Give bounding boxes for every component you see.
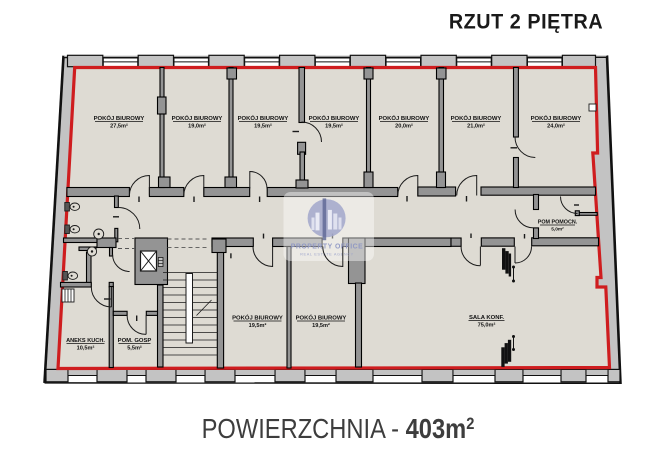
svg-text:PROPERTY OFFICE: PROPERTY OFFICE — [291, 244, 363, 251]
svg-text:24,0m²: 24,0m² — [547, 123, 565, 130]
svg-text:POKÓJ BIUROWY: POKÓJ BIUROWY — [232, 314, 283, 322]
svg-text:19,5m²: 19,5m² — [312, 322, 330, 329]
svg-text:POKÓJ BIUROWY: POKÓJ BIUROWY — [172, 114, 223, 122]
svg-text:REAL ESTATE AGENCY: REAL ESTATE AGENCY — [300, 252, 354, 257]
svg-text:27,5m²: 27,5m² — [110, 123, 128, 130]
svg-text:19,0m²: 19,0m² — [188, 123, 206, 130]
svg-text:75,0m²: 75,0m² — [478, 322, 496, 329]
svg-text:RZUT 2 PIĘTRA: RZUT 2 PIĘTRA — [449, 10, 603, 34]
svg-text:POKÓJ BIUROWY: POKÓJ BIUROWY — [296, 314, 347, 322]
svg-text:POKÓJ BIUROWY: POKÓJ BIUROWY — [238, 114, 289, 122]
svg-text:21,0m²: 21,0m² — [467, 123, 485, 130]
svg-text:19,5m²: 19,5m² — [249, 322, 267, 329]
svg-text:POKÓJ BIUROWY: POKÓJ BIUROWY — [379, 114, 430, 122]
svg-text:20,0m²: 20,0m² — [395, 123, 413, 130]
svg-text:SALA KONF.: SALA KONF. — [469, 315, 504, 321]
svg-text:POKÓJ BIUROWY: POKÓJ BIUROWY — [309, 114, 360, 122]
svg-text:19,5m²: 19,5m² — [325, 123, 343, 130]
svg-text:POWIERZCHNIA - 403m2: POWIERZCHNIA - 403m2 — [202, 414, 475, 444]
svg-text:19,5m²: 19,5m² — [254, 123, 272, 130]
svg-text:5,5m²: 5,5m² — [127, 345, 142, 352]
svg-text:10,5m²: 10,5m² — [77, 345, 95, 352]
svg-text:ANEKS KUCH.: ANEKS KUCH. — [66, 338, 105, 344]
svg-text:POM POMOCN.: POM POMOCN. — [538, 220, 578, 226]
svg-text:POKÓJ BIUROWY: POKÓJ BIUROWY — [531, 114, 582, 122]
svg-text:POKÓJ BIUROWY: POKÓJ BIUROWY — [451, 114, 502, 122]
svg-text:POM. GOSP: POM. GOSP — [118, 338, 152, 344]
svg-text:5,0m²: 5,0m² — [551, 227, 564, 233]
svg-text:POKÓJ BIUROWY: POKÓJ BIUROWY — [94, 114, 145, 122]
